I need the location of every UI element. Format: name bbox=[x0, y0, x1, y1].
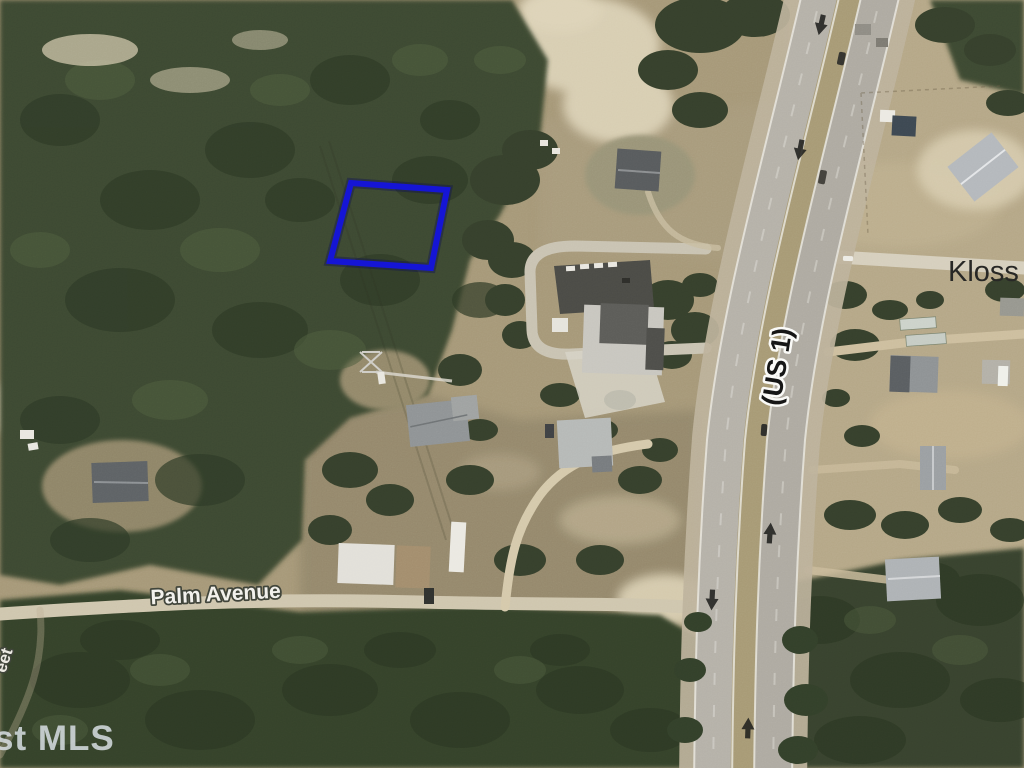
photo-grain-overlay bbox=[0, 0, 1024, 768]
aerial-parcel-map: Kloss St (US 1) Palm Avenue eet st MLS bbox=[0, 0, 1024, 768]
aerial-photo: Kloss St (US 1) Palm Avenue eet st MLS bbox=[0, 0, 1024, 768]
